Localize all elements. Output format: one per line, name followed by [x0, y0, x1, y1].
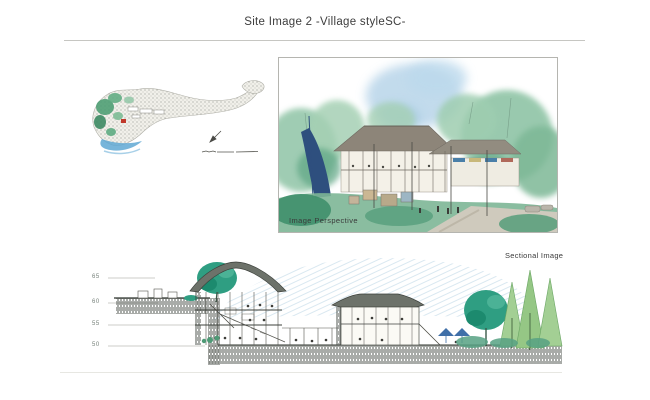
title-divider [64, 40, 585, 41]
elevation-label-1: 65 [92, 274, 100, 280]
bottom-divider [60, 372, 562, 373]
elevation-label-3: 55 [92, 321, 100, 327]
perspective-figure: Image Perspective [278, 57, 558, 233]
sectional-plaza [282, 328, 338, 345]
perspective-ground [279, 193, 557, 232]
site-plan-figure [84, 77, 278, 167]
sectional-figure [60, 258, 620, 372]
north-arrow-icon [210, 131, 221, 142]
perspective-illustration [279, 58, 557, 232]
page-title: Site Image 2 -Village styleSC- [0, 16, 650, 28]
elevation-label-4: 50 [92, 342, 100, 348]
perspective-shops [451, 158, 519, 186]
site-plan-illustration [84, 77, 278, 167]
site-plan-red-marker [121, 119, 126, 123]
perspective-label: Image Perspective [289, 216, 358, 225]
sectional-pine-trees [500, 270, 562, 350]
scale-bar-icon [202, 151, 258, 152]
elevation-label-2: 60 [92, 299, 100, 305]
sectional-illustration [60, 258, 620, 372]
